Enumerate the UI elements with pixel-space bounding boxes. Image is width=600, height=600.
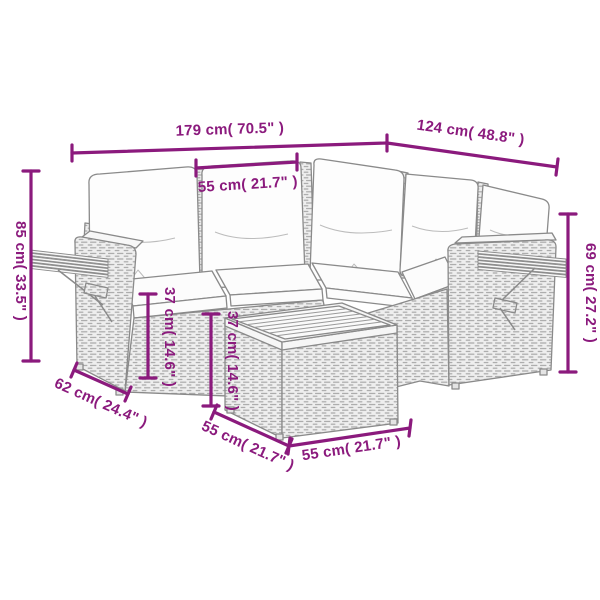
- dimension-label-total-height: 85 cm( 33.5" ): [12, 221, 29, 321]
- right-armrest: [448, 233, 566, 389]
- dimension-right-height: 69 cm( 27.2" ): [560, 214, 599, 372]
- coffee-table: [225, 303, 398, 440]
- dimension-total-width: 179 cm( 70.5" ): [72, 119, 387, 161]
- dimension-label-total-width: 179 cm( 70.5" ): [175, 119, 284, 139]
- dimension-label-right-height: 69 cm( 27.2" ): [582, 243, 599, 343]
- diagram-canvas: 179 cm( 70.5" ) 124 cm( 48.8" ) 55 cm( 2…: [0, 0, 600, 600]
- dimension-right-depth: 124 cm( 48.8" ): [387, 117, 558, 175]
- sofa-foot: [452, 383, 459, 389]
- left-armrest: [30, 231, 143, 395]
- dimension-label-table-height: 37 cm( 14.6" ): [224, 311, 241, 411]
- table-foot: [390, 419, 397, 425]
- dimension-label-seat-height: 37 cm( 14.6" ): [161, 287, 178, 387]
- dimension-label-right-depth: 124 cm( 48.8" ): [416, 117, 526, 149]
- back-cushion-3: [310, 159, 404, 280]
- sofa-foot: [540, 369, 547, 375]
- product-dimension-diagram: 179 cm( 70.5" ) 124 cm( 48.8" ) 55 cm( 2…: [0, 0, 600, 600]
